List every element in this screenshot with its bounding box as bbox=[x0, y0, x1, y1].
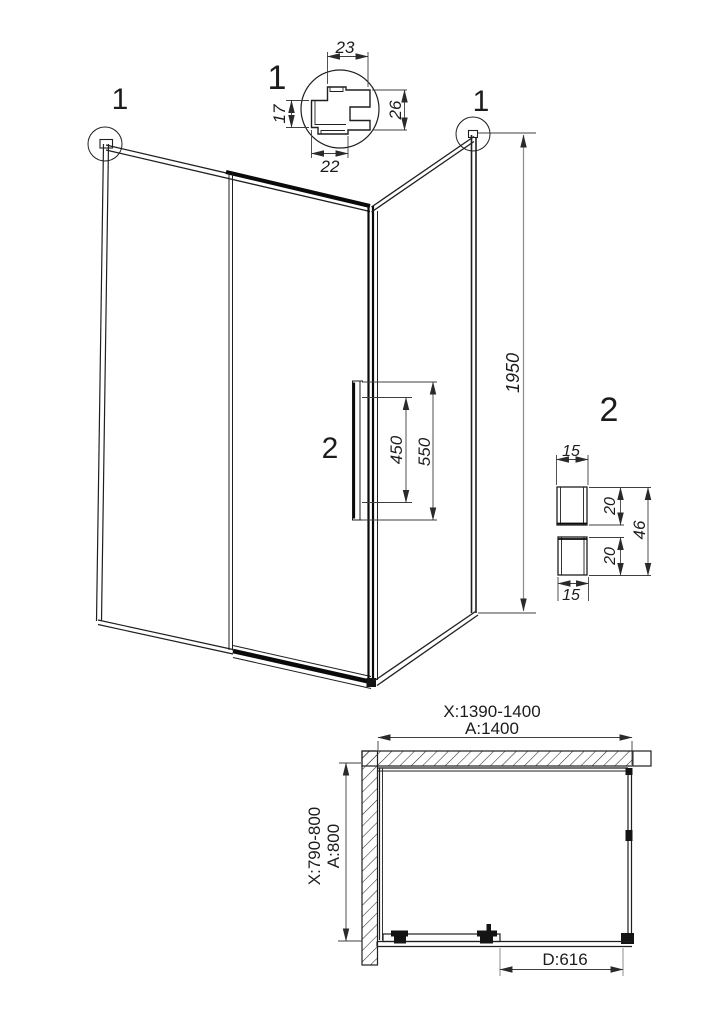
plan-width-nominal-label: A:1400 bbox=[465, 719, 519, 738]
profile-outline bbox=[312, 87, 371, 134]
corner-post bbox=[367, 205, 378, 687]
detail-ref-left-label: 1 bbox=[112, 83, 129, 116]
glass-connector-mid bbox=[626, 830, 633, 841]
plan-door-dimension: D:616 bbox=[500, 948, 623, 976]
dim-22-label: 22 bbox=[320, 157, 340, 176]
detail-ref-right: 1 bbox=[456, 85, 490, 151]
left-wall-hatch bbox=[362, 751, 378, 965]
elevation-view: 1 bbox=[88, 83, 536, 689]
door-roller-right bbox=[477, 924, 497, 944]
handle-ref-label: 2 bbox=[322, 432, 339, 465]
handle-section-upper bbox=[557, 487, 587, 525]
dim-20-lower-label: 20 bbox=[602, 547, 619, 566]
detail-2-dim-bottom: 15 bbox=[558, 577, 589, 604]
left-wall-profile bbox=[97, 140, 113, 622]
detail-2-dim-upper: 20 bbox=[589, 488, 651, 526]
door-top-rail bbox=[226, 172, 370, 206]
dim-20-upper-label: 20 bbox=[602, 497, 619, 516]
detail-2-handle-section: 2 15 20 bbox=[557, 391, 652, 604]
front-top-rail bbox=[106, 145, 370, 212]
glass-connector-top bbox=[626, 768, 633, 775]
detail-2-dim-total: 46 bbox=[589, 488, 651, 576]
plan-depth-dimension: X:790-800 A:800 bbox=[305, 763, 362, 941]
side-panel bbox=[372, 131, 479, 686]
detail-1-title: 1 bbox=[268, 59, 287, 97]
plan-depth-adjust-label: X:790-800 bbox=[305, 807, 324, 885]
detail-1-dim-top: 23 bbox=[328, 38, 369, 87]
corner-foot bbox=[367, 678, 377, 687]
dim-23-label: 23 bbox=[335, 38, 355, 57]
plan-door-track bbox=[377, 924, 632, 947]
height-dim-label: 1950 bbox=[503, 353, 523, 393]
detail-1-profile-section: 1 23 17 26 bbox=[268, 38, 407, 176]
detail-2-title: 2 bbox=[600, 391, 619, 429]
door-handle bbox=[353, 381, 364, 520]
dim-15-top-label: 15 bbox=[562, 443, 580, 460]
handle-outer-dim-label: 550 bbox=[415, 437, 434, 466]
dim-15-bottom-label: 15 bbox=[562, 587, 580, 604]
height-dimension: 1950 bbox=[478, 133, 536, 613]
door-bottom-rail bbox=[233, 651, 371, 682]
handle-section-lower bbox=[558, 537, 587, 575]
handle-inner-dim-label: 450 bbox=[387, 435, 406, 464]
door-handle-pin bbox=[487, 924, 492, 932]
detail-ref-right-label: 1 bbox=[473, 85, 490, 118]
glass-corner-bracket bbox=[621, 933, 634, 944]
dim-46-label: 46 bbox=[630, 520, 649, 539]
handle-dimensions: 450 550 2 bbox=[322, 382, 437, 520]
detail-2-dim-lower: 20 bbox=[589, 538, 624, 576]
dim-17-label: 17 bbox=[270, 104, 289, 123]
top-wall-hatch bbox=[362, 751, 633, 766]
dim-26-label: 26 bbox=[386, 100, 405, 120]
detail-2-dim-top: 15 bbox=[557, 443, 589, 485]
sliding-door bbox=[226, 172, 371, 689]
plan-door-dim-label: D:616 bbox=[542, 950, 587, 969]
plan-depth-nominal-label: A:800 bbox=[324, 824, 343, 868]
drawing-canvas: 1 bbox=[0, 0, 724, 1024]
plan-view: X:1390-1400 A:1400 bbox=[305, 702, 651, 976]
detail-1-dim-bottom: 22 bbox=[312, 130, 349, 176]
fixed-panel-bottom-rail bbox=[98, 620, 233, 654]
technical-drawing: 1 bbox=[0, 0, 724, 1024]
plan-glass-panels bbox=[378, 768, 634, 944]
